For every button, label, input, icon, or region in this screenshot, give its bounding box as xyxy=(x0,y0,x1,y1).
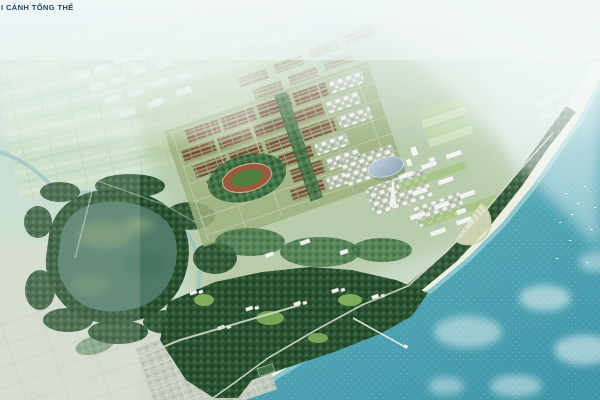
masterplan-rendering: I CẢNH TỔNG THỂ xyxy=(0,0,600,400)
aerial-scene xyxy=(0,0,600,400)
view-title: I CẢNH TỔNG THỂ xyxy=(1,3,74,12)
